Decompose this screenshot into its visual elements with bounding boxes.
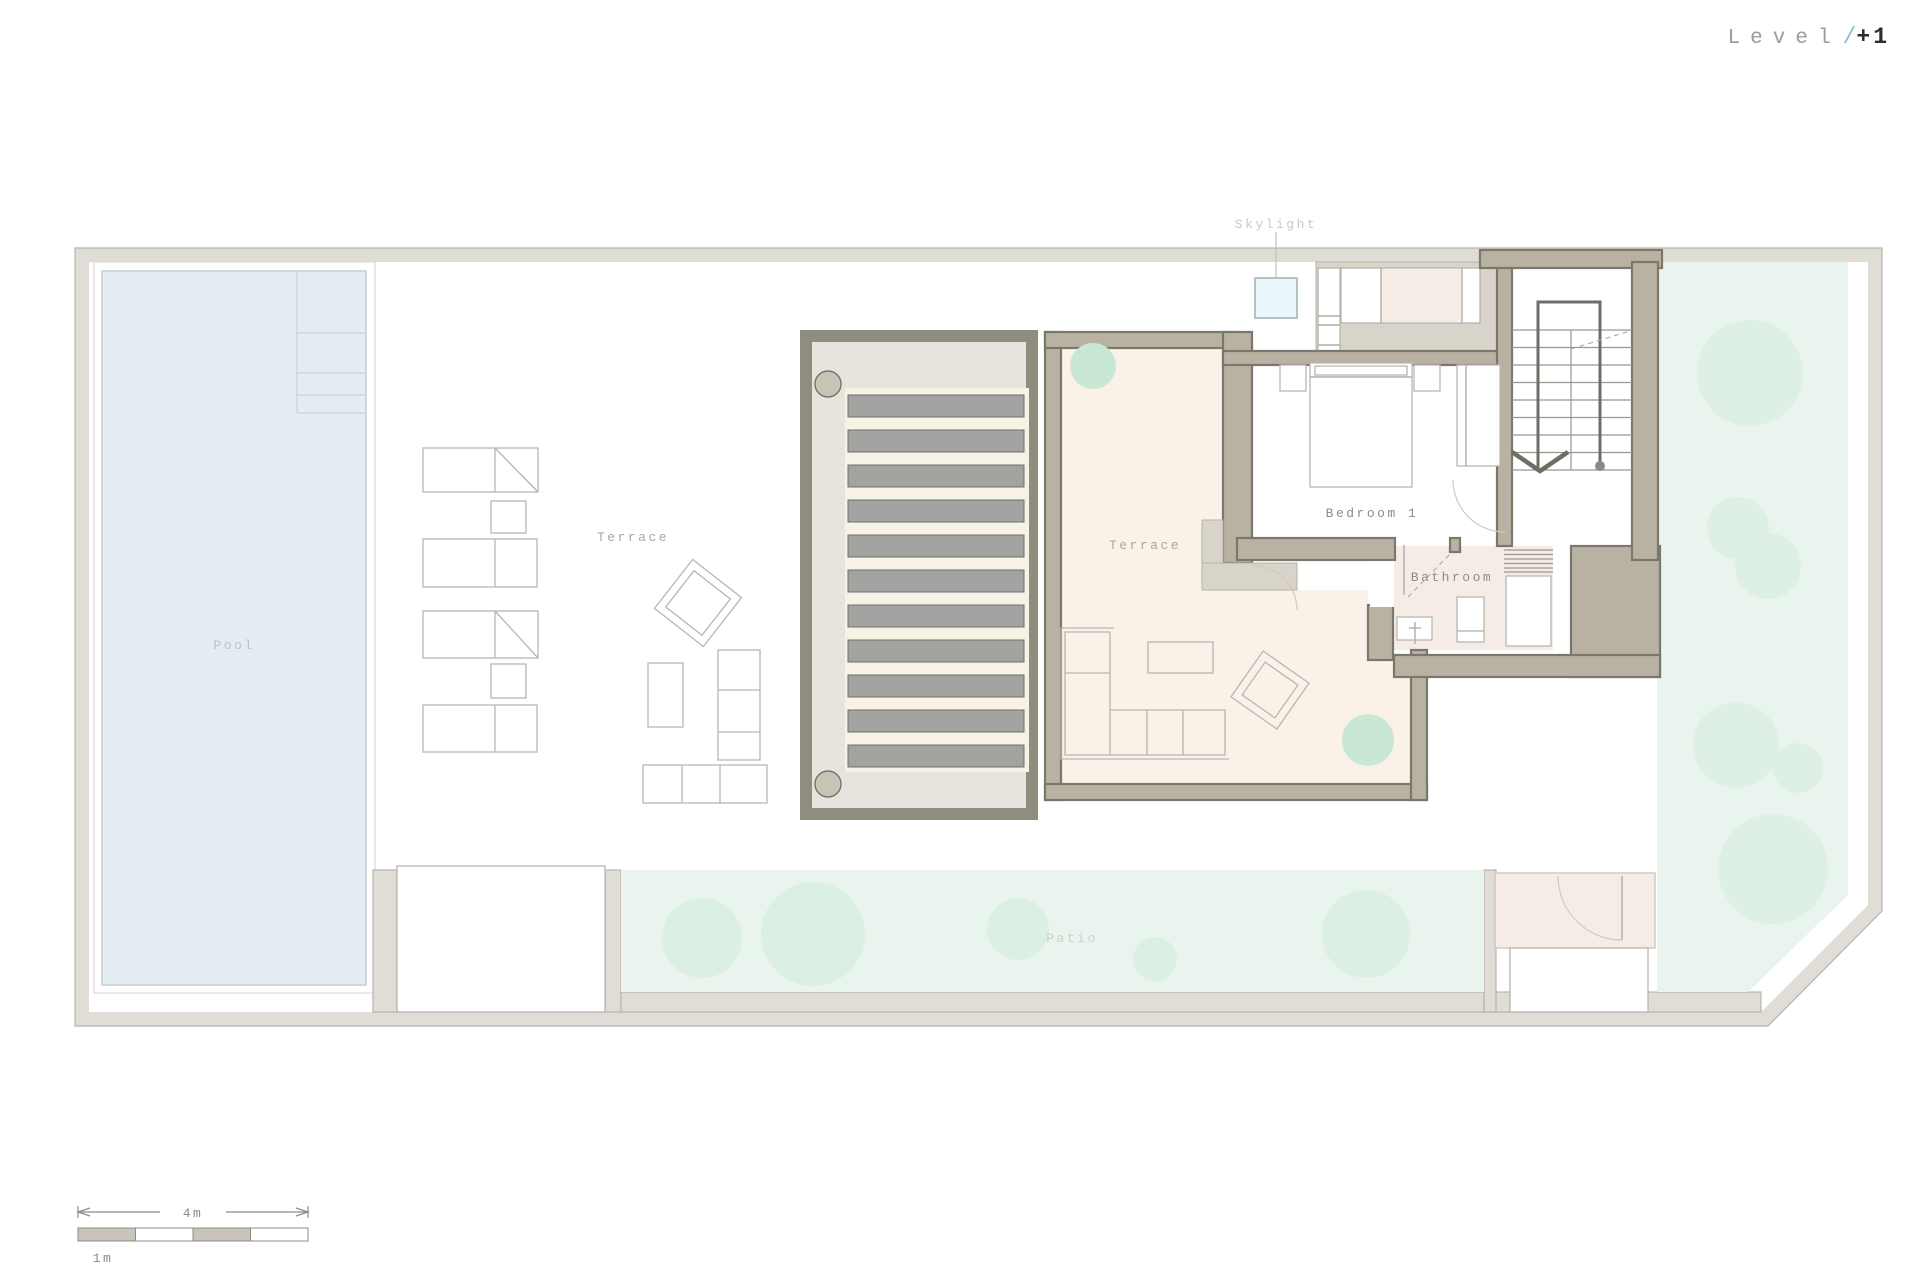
- bed: [1310, 363, 1412, 487]
- scale-unit-label: 1m: [93, 1251, 114, 1266]
- scale-bar: 4m 1m: [78, 1206, 308, 1266]
- wardrobe: [1457, 365, 1500, 466]
- floor-plan-page: Level / +1: [0, 0, 1920, 1280]
- pergola-column: [815, 371, 841, 397]
- nightstand: [1414, 365, 1440, 391]
- upper-rooms: [1316, 262, 1497, 352]
- lower-room: [1495, 873, 1655, 1012]
- plant: [1070, 343, 1116, 389]
- skylight-label: Skylight: [1235, 217, 1317, 232]
- bedroom-label: Bedroom 1: [1326, 506, 1419, 521]
- nightstand: [1280, 365, 1306, 391]
- floor-plan-drawing: Skylight Pool Terrace Terrace Bedroom 1 …: [0, 0, 1920, 1280]
- garden: [1657, 262, 1848, 992]
- plant: [1342, 714, 1394, 766]
- terrace-main-label: Terrace: [1109, 538, 1181, 553]
- pergola: [806, 336, 1032, 814]
- patio-label: Patio: [1046, 931, 1098, 946]
- bathroom-label: Bathroom: [1411, 570, 1493, 585]
- sink: [1397, 617, 1432, 644]
- scale-total-label: 4m: [183, 1206, 204, 1221]
- bed-pillows: [1315, 366, 1407, 375]
- toilet: [1457, 597, 1484, 642]
- pergola-column: [815, 771, 841, 797]
- pool-label: Pool: [213, 638, 254, 653]
- terrace-left-label: Terrace: [597, 530, 669, 545]
- pergola-slats: [848, 395, 1024, 767]
- pool: [94, 262, 375, 993]
